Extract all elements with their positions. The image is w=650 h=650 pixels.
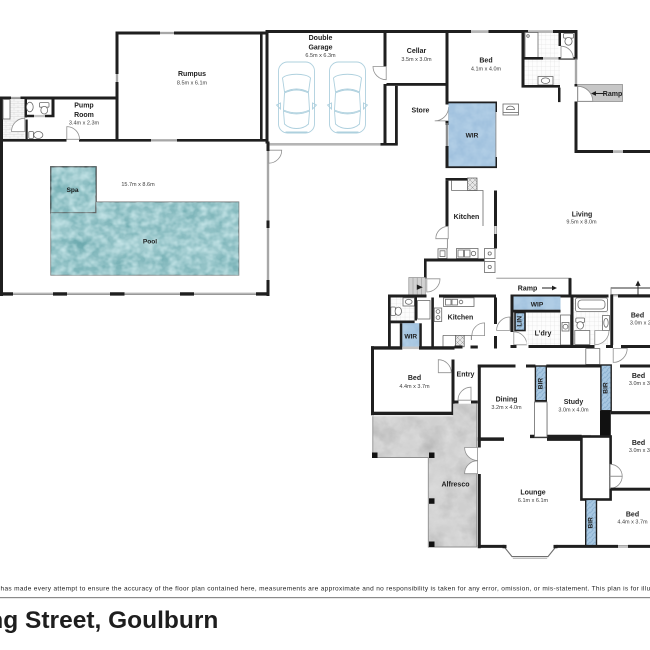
svg-text:Lounge: Lounge [520,490,545,497]
svg-text:Alfresco: Alfresco [441,482,469,489]
svg-text:Pool: Pool [143,239,157,246]
svg-text:Bed: Bed [632,373,645,380]
svg-text:Garage: Garage [308,45,332,52]
svg-text:Cellar: Cellar [407,48,427,55]
svg-text:Bed: Bed [479,58,492,65]
svg-text:6.5m x 6.3m: 6.5m x 6.3m [305,53,336,59]
svg-text:Bed: Bed [632,440,645,447]
svg-text:Kitchen: Kitchen [448,315,474,322]
svg-text:15.7m x 8.6m: 15.7m x 8.6m [121,182,155,188]
svg-text:3.0m x 4.0m: 3.0m x 4.0m [558,408,589,414]
svg-text:Kitchen: Kitchen [454,214,480,221]
svg-text:Room: Room [74,112,94,119]
svg-text:3.2m x 4.0m: 3.2m x 4.0m [491,405,522,411]
svg-text:Study: Study [564,399,584,406]
svg-text:Dining: Dining [496,397,518,404]
svg-text:ing Street, Goulburn: ing Street, Goulburn [0,607,218,634]
svg-text:Bed: Bed [631,313,644,320]
svg-text:has made every attempt to ensu: has made every attempt to ensure the acc… [1,586,650,593]
svg-text:3.4m x 2.3m: 3.4m x 2.3m [69,121,100,127]
svg-text:WIR: WIR [466,133,479,140]
svg-text:Store: Store [412,108,430,115]
svg-text:Ramp: Ramp [518,286,537,293]
svg-text:Spa: Spa [66,187,78,194]
svg-text:BIR: BIR [537,378,544,390]
svg-text:WIP: WIP [531,302,544,309]
svg-text:Ramp: Ramp [603,91,622,98]
svg-text:3.5m x 3.0m: 3.5m x 3.0m [401,57,432,63]
svg-text:LIN: LIN [517,316,524,327]
svg-text:3.0m x 3.8m: 3.0m x 3.8m [629,448,650,454]
svg-text:Double: Double [309,35,333,42]
svg-text:4.4m x 3.7m: 4.4m x 3.7m [617,520,648,526]
svg-text:Living: Living [572,212,593,219]
svg-text:WIR: WIR [404,333,417,340]
svg-text:3.0m x 3.6m: 3.0m x 3.6m [629,381,650,387]
svg-text:BIR: BIR [588,517,595,529]
svg-text:4.1m x 4.0m: 4.1m x 4.0m [471,67,502,73]
svg-text:BIR: BIR [603,382,610,394]
svg-text:9.5m x 8.0m: 9.5m x 8.0m [566,220,597,226]
svg-text:8.5m x 6.1m: 8.5m x 6.1m [177,81,208,87]
svg-text:Entry: Entry [457,372,475,379]
svg-text:Bed: Bed [626,512,639,519]
svg-text:6.1m x 6.1m: 6.1m x 6.1m [518,498,549,504]
svg-text:Bed: Bed [408,375,421,382]
svg-text:Rumpus: Rumpus [178,71,206,78]
svg-text:4.4m x 3.7m: 4.4m x 3.7m [399,384,430,390]
svg-text:L’dry: L’dry [535,331,552,338]
svg-text:Pump: Pump [74,103,93,110]
svg-text:3.0m x 2.8m: 3.0m x 2.8m [630,321,650,327]
